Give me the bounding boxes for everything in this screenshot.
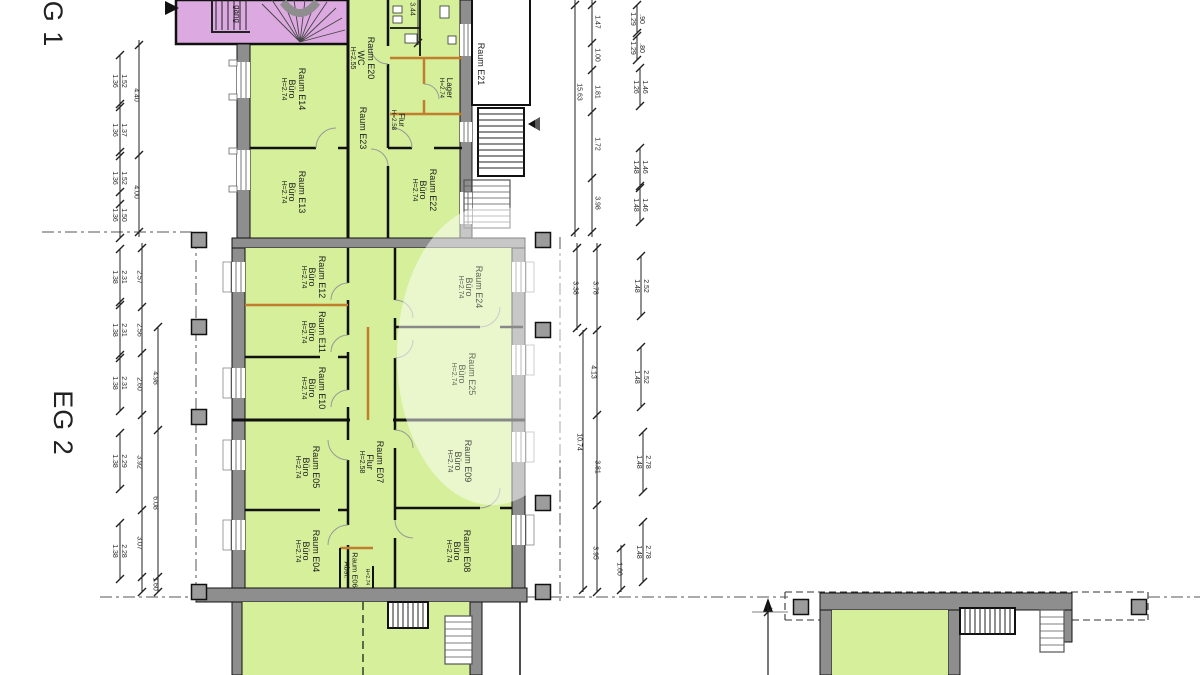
- column: [536, 323, 551, 338]
- exterior-stair: [478, 108, 524, 176]
- column: [192, 320, 207, 335]
- column: [536, 585, 551, 600]
- floor-plan-drawing: [0, 0, 1200, 675]
- column: [192, 585, 207, 600]
- column: [536, 496, 551, 511]
- column: [1132, 600, 1147, 615]
- column: [192, 233, 207, 248]
- column: [536, 233, 551, 248]
- bottom-extension: [232, 602, 520, 675]
- column: [192, 410, 207, 425]
- second-building: [752, 592, 1148, 675]
- column: [794, 600, 809, 615]
- floorplan-canvas: G 1 EG 2 gangRaum E14BüroH=2.74Raum E13B…: [0, 0, 1200, 675]
- eg1-building: [165, 0, 540, 238]
